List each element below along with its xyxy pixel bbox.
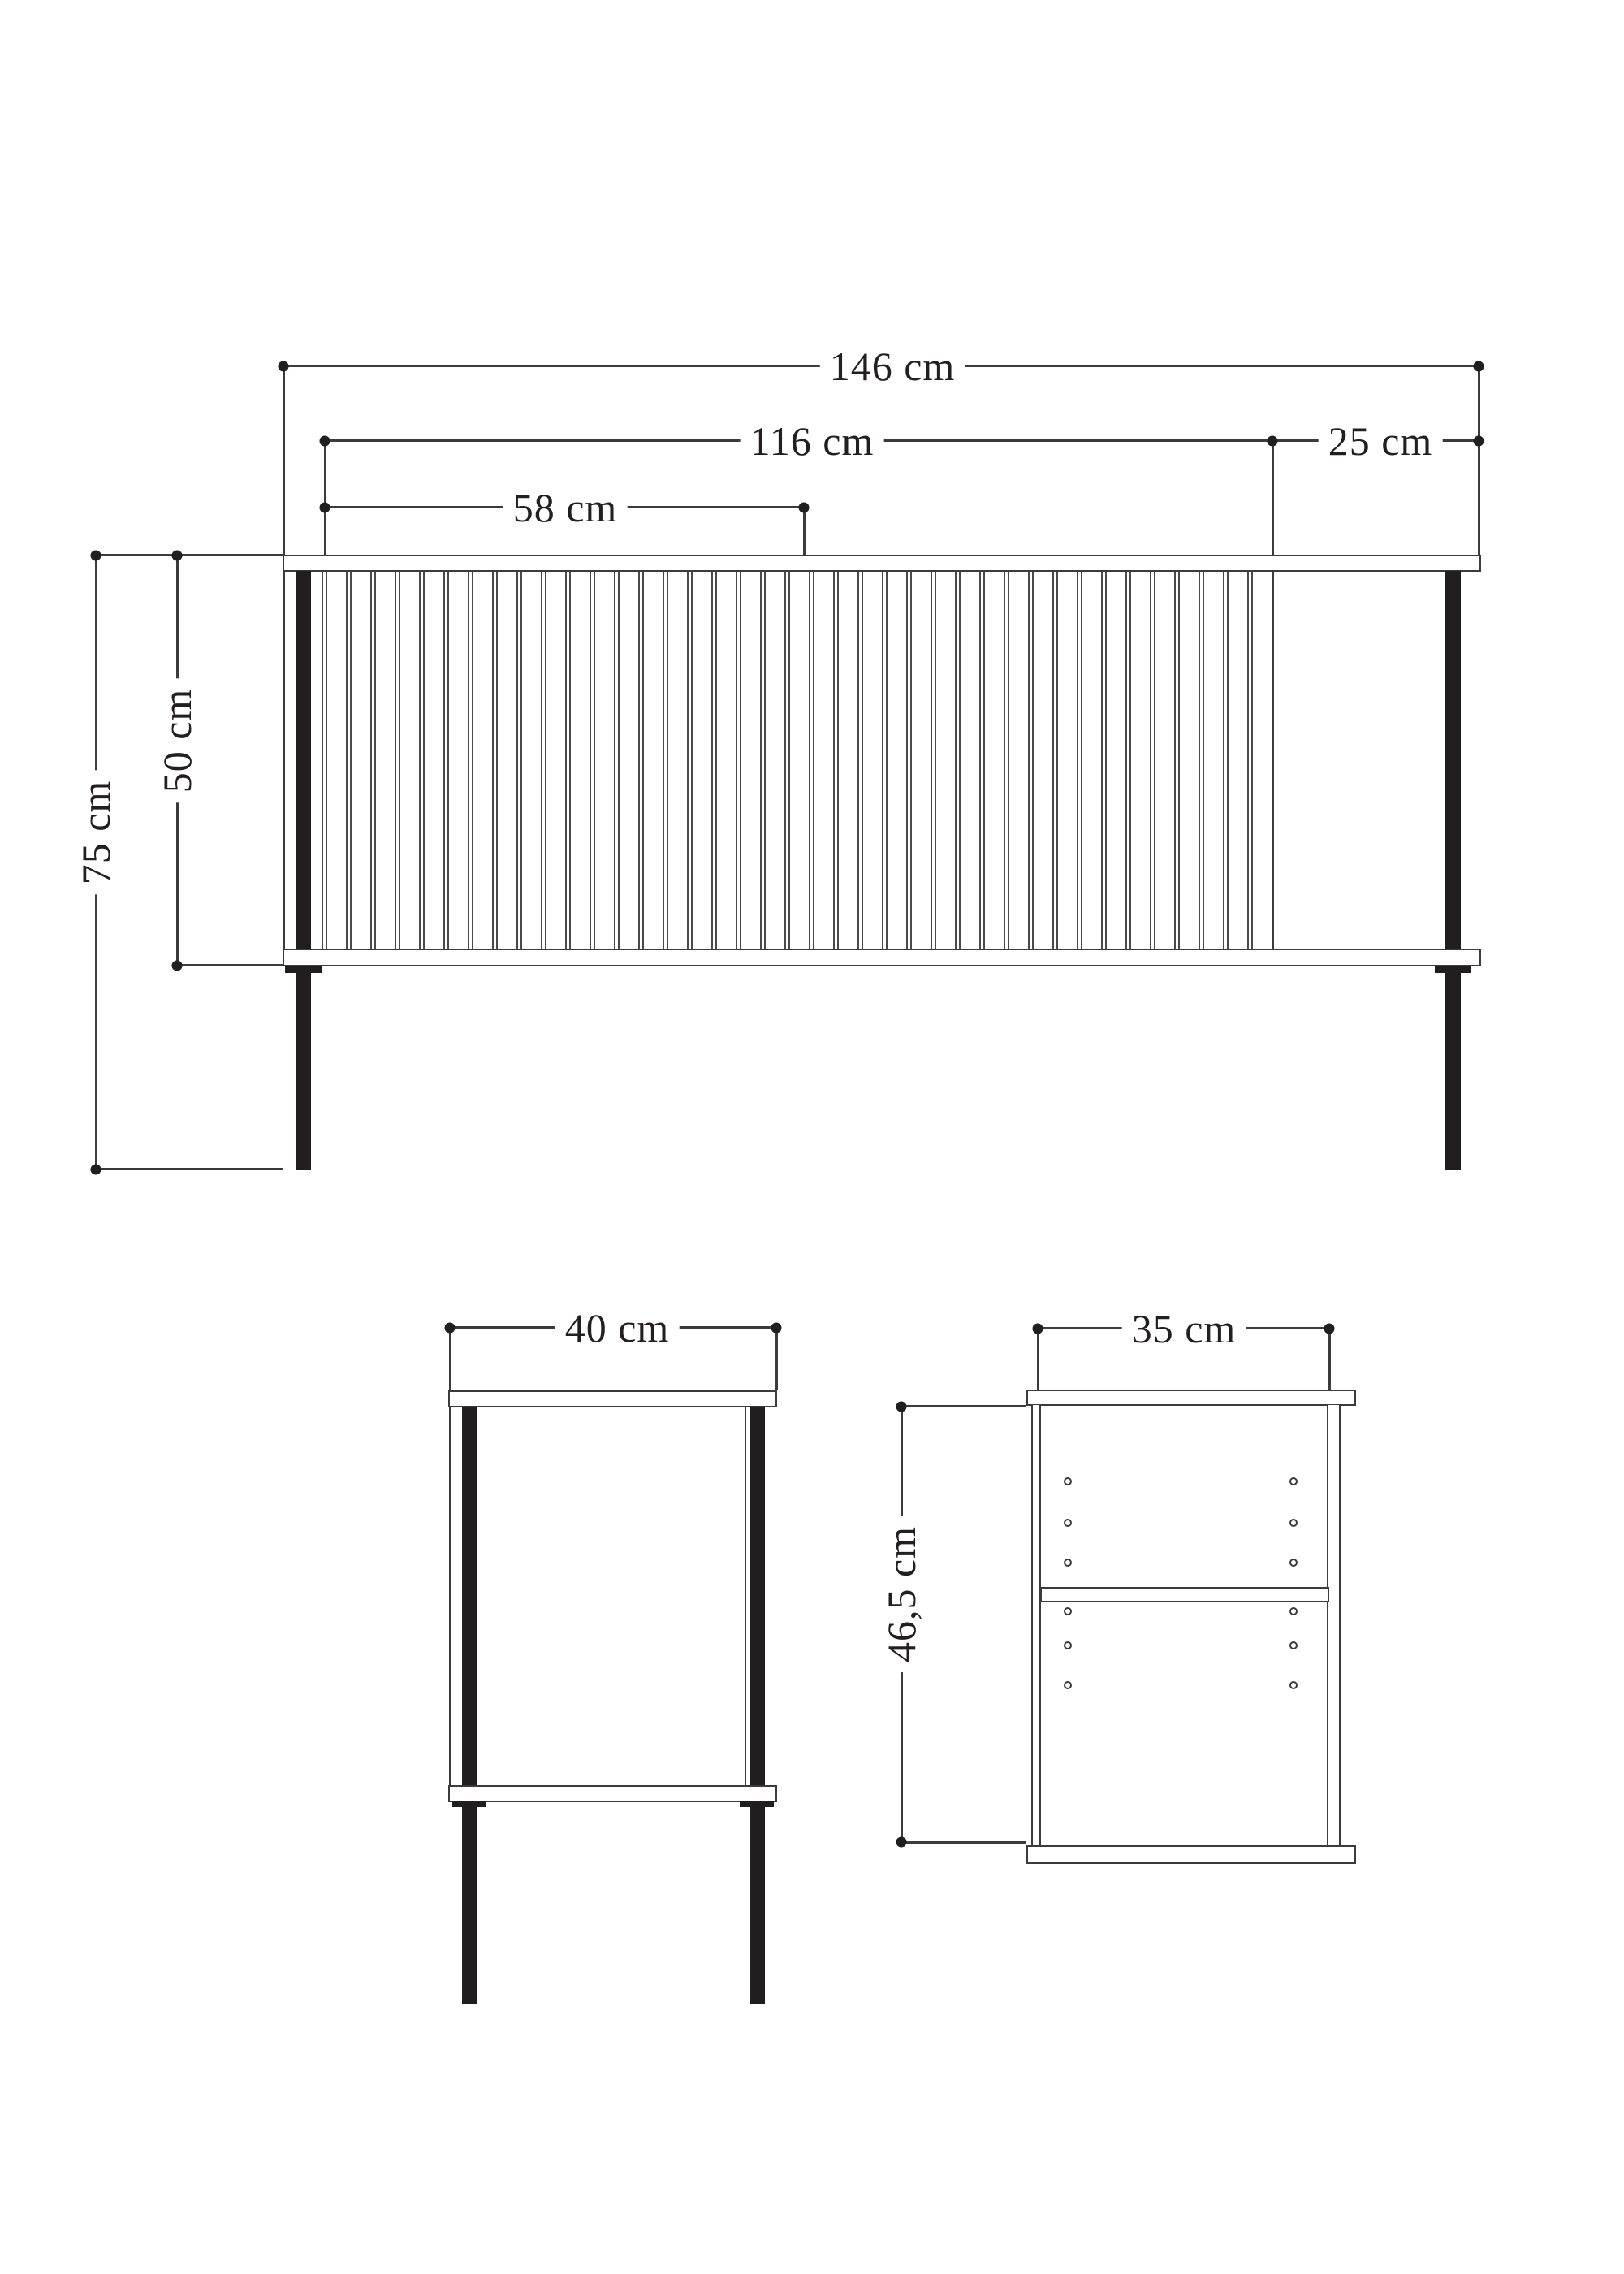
shelf-pin-hole <box>1289 1477 1298 1485</box>
front-left-edge <box>283 571 285 949</box>
dim-146-ext-left <box>283 365 285 556</box>
dim-endpoint-dot <box>799 503 810 513</box>
dim-116-25-line <box>324 439 1479 442</box>
dim-465-label: 46,5 cm <box>881 1516 922 1672</box>
dim-116-ext-right <box>1272 439 1274 556</box>
front-right-foot-plate <box>1435 966 1471 973</box>
side-front-foot-plate <box>452 1801 486 1807</box>
section-top-board <box>1026 1390 1356 1406</box>
section-bottom-board <box>1026 1845 1356 1864</box>
dim-50-ext-bottom <box>172 964 283 966</box>
dim-endpoint-dot <box>279 361 289 372</box>
dim-58-ext-right <box>803 506 806 556</box>
dim-146-label: 146 cm <box>820 346 965 387</box>
dim-endpoint-dot <box>445 1323 456 1334</box>
front-slat-panel <box>322 572 1273 949</box>
dim-endpoint-dot <box>1268 436 1278 447</box>
side-bottom-board <box>448 1785 777 1802</box>
dim-endpoint-dot <box>91 1165 101 1175</box>
dim-116-label: 116 cm <box>741 421 884 461</box>
side-front-leg-lower <box>462 1807 477 2004</box>
dim-endpoint-dot <box>320 503 330 513</box>
front-bottom-board <box>283 949 1481 966</box>
dim-58-label: 58 cm <box>503 487 628 528</box>
front-right-leg-lower <box>1445 973 1461 1170</box>
dim-116-ext-left <box>324 439 326 556</box>
shelf-pin-hole <box>1064 1607 1072 1615</box>
dim-40-label: 40 cm <box>555 1308 680 1348</box>
dim-146-ext-right <box>1478 365 1480 556</box>
dim-465-ext-bottom <box>896 1841 1026 1844</box>
dim-endpoint-dot <box>896 1837 907 1848</box>
dim-endpoint-dot <box>91 551 101 561</box>
side-back-leg-upper <box>750 1407 765 1786</box>
section-right-panel <box>1327 1405 1341 1846</box>
furniture-dimension-drawing: 146 cm 116 cm 25 cm 58 cm 75 cm 50 cm <box>0 0 1624 2274</box>
dim-endpoint-dot <box>1324 1324 1335 1334</box>
shelf-pin-hole <box>1064 1681 1072 1689</box>
shelf-pin-hole <box>1064 1477 1072 1485</box>
shelf-pin-hole <box>1289 1519 1298 1527</box>
dim-35-ext-right <box>1328 1327 1331 1390</box>
front-right-leg-upper <box>1445 571 1461 949</box>
side-back-foot-plate <box>740 1801 774 1807</box>
dim-50-label: 50 cm <box>157 679 197 803</box>
dim-endpoint-dot <box>320 436 330 447</box>
dim-465-ext-top <box>896 1405 1026 1407</box>
dim-endpoint-dot <box>1474 436 1484 447</box>
dim-endpoint-dot <box>172 551 183 561</box>
shelf-pin-hole <box>1289 1559 1298 1567</box>
front-left-foot-plate <box>285 966 322 973</box>
dim-top-extension <box>92 554 283 556</box>
shelf-pin-hole <box>1289 1607 1298 1615</box>
dim-75-label: 75 cm <box>76 771 116 895</box>
shelf-pin-hole <box>1289 1681 1298 1689</box>
dim-35-ext-left <box>1037 1327 1039 1390</box>
dim-endpoint-dot <box>172 961 183 971</box>
section-left-panel <box>1031 1405 1041 1846</box>
side-left-edge <box>449 1407 451 1786</box>
front-left-leg-lower <box>296 973 311 1170</box>
side-top-board <box>448 1390 777 1407</box>
dim-25-label: 25 cm <box>1319 421 1443 461</box>
shelf-pin-hole <box>1064 1559 1072 1567</box>
dim-endpoint-dot <box>1033 1324 1043 1334</box>
dim-endpoint-dot <box>896 1402 907 1412</box>
shelf-pin-hole <box>1064 1641 1072 1649</box>
shelf-pin-hole <box>1289 1641 1298 1649</box>
dim-40-ext-right <box>775 1326 778 1390</box>
dim-endpoint-dot <box>771 1323 782 1334</box>
front-divider-edge <box>1272 571 1274 949</box>
front-top-board <box>283 555 1481 572</box>
front-left-leg-upper <box>296 571 311 949</box>
side-back-leg-lower <box>750 1807 765 2004</box>
dim-40-ext-left <box>449 1326 451 1390</box>
section-middle-shelf <box>1040 1587 1329 1602</box>
side-right-edge <box>745 1407 746 1786</box>
side-front-leg-upper <box>462 1407 477 1786</box>
shelf-pin-hole <box>1064 1519 1072 1527</box>
dim-35-label: 35 cm <box>1122 1308 1246 1349</box>
dim-75-ext-bottom <box>91 1168 283 1170</box>
dim-endpoint-dot <box>1474 361 1484 372</box>
